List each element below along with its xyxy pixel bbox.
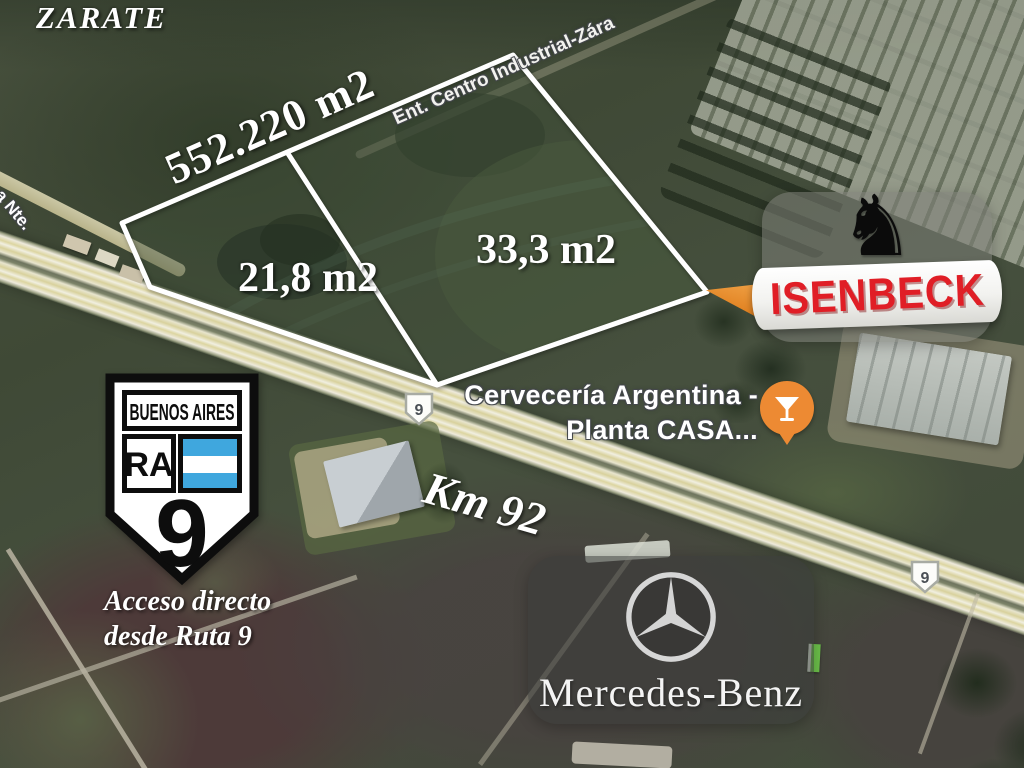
mercedes-star-icon xyxy=(622,568,720,666)
poi-pin-tail xyxy=(779,433,795,445)
route-9-shield-icon: BUENOS AIRES RA 9 xyxy=(102,370,262,588)
isenbeck-brand-text: ISENBECK xyxy=(769,265,986,325)
route-9-marker-icon: 9 xyxy=(404,392,434,426)
horse-rider-icon: ♞ xyxy=(762,184,992,268)
lot-left-area-label: 21,8 m2 xyxy=(238,254,378,302)
isenbeck-ribbon: ISENBECK xyxy=(751,260,1003,331)
mercedes-logo-card: Mercedes-Benz xyxy=(528,556,814,724)
route-9-marker-icon: 9 xyxy=(910,560,940,594)
brewery-label-line1: Cervecería Argentina - xyxy=(378,378,758,413)
city-label: ZARATE xyxy=(36,0,167,36)
satellite-map: ZARATE 552.220 m2 21,8 m2 33,3 m2 Km 92 … xyxy=(0,0,1024,768)
argentina-flag-stripe xyxy=(183,439,237,456)
route-marker-number: 9 xyxy=(415,402,424,419)
brewery-label-line2: Planta CASA... xyxy=(378,413,758,448)
lot-right-area-label: 33,3 m2 xyxy=(476,226,616,274)
martini-glass-icon xyxy=(772,393,802,423)
poi-pin-circle xyxy=(760,381,814,435)
brewery-map-label: Cervecería Argentina - Planta CASA... xyxy=(378,378,758,448)
shield-country-code: RA xyxy=(124,446,173,484)
access-note-line1: Acceso directo xyxy=(104,586,271,617)
brewery-map-pin xyxy=(760,381,814,447)
access-note: Acceso directo desde Ruta 9 xyxy=(104,584,271,654)
access-note-line2: desde Ruta 9 xyxy=(104,621,252,652)
mercedes-brand-text: Mercedes-Benz xyxy=(528,669,814,716)
shield-region-text: BUENOS AIRES xyxy=(130,399,235,425)
isenbeck-logo-card: ♞ ISENBECK xyxy=(762,192,992,342)
route-marker-number: 9 xyxy=(921,570,930,587)
shield-route-number: 9 xyxy=(155,480,208,587)
